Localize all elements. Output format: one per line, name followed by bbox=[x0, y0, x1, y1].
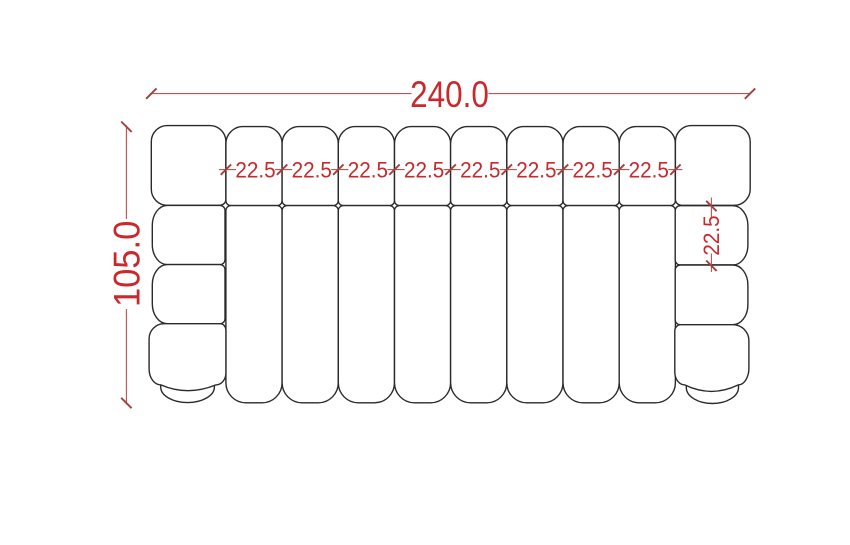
svg-text:22.5: 22.5 bbox=[629, 156, 669, 182]
svg-text:105.0: 105.0 bbox=[105, 221, 148, 307]
svg-text:22.5: 22.5 bbox=[698, 215, 724, 255]
svg-text:22.5: 22.5 bbox=[516, 156, 556, 182]
svg-text:22.5: 22.5 bbox=[235, 156, 275, 182]
svg-text:240.0: 240.0 bbox=[410, 74, 489, 115]
svg-text:22.5: 22.5 bbox=[572, 156, 612, 182]
svg-text:22.5: 22.5 bbox=[404, 156, 444, 182]
svg-text:22.5: 22.5 bbox=[292, 156, 332, 182]
svg-text:22.5: 22.5 bbox=[348, 156, 388, 182]
svg-text:22.5: 22.5 bbox=[460, 156, 500, 182]
